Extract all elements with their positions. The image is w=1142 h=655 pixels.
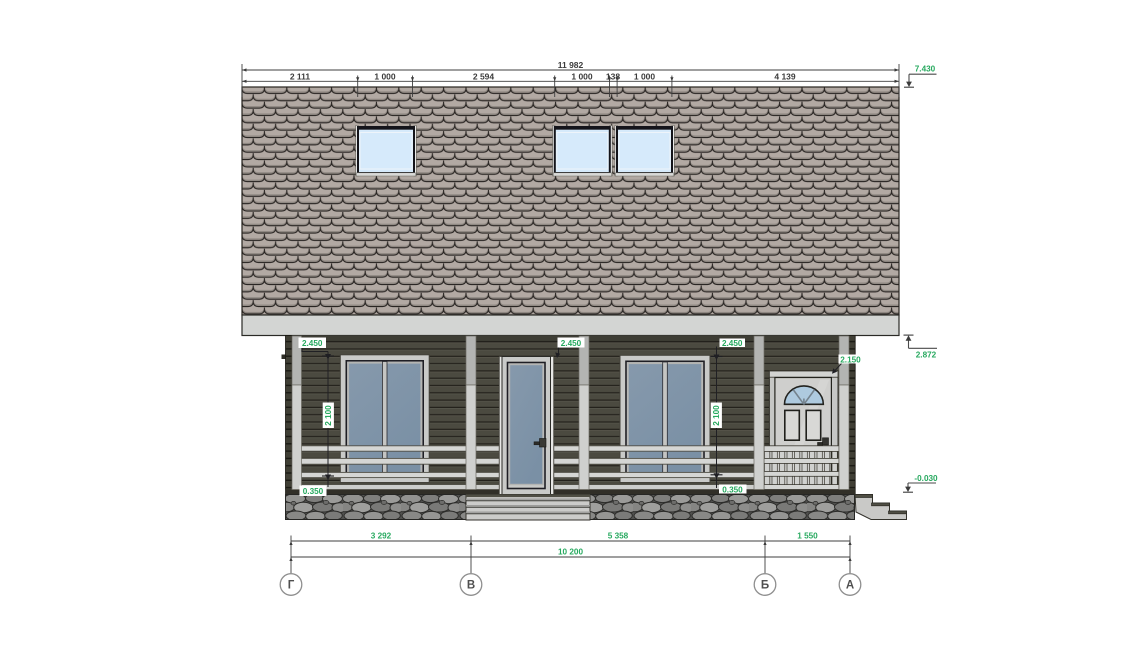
svg-text:10 200: 10 200 (558, 548, 583, 557)
svg-text:2 594: 2 594 (473, 71, 495, 81)
svg-text:138: 138 (606, 71, 620, 81)
svg-text:Б: Б (761, 580, 769, 592)
svg-text:-0.030: -0.030 (914, 474, 938, 483)
svg-text:2 111: 2 111 (290, 71, 311, 81)
svg-text:7.430: 7.430 (915, 65, 936, 74)
svg-text:2.450: 2.450 (722, 339, 743, 348)
svg-text:2 100: 2 100 (712, 405, 721, 426)
svg-text:5 358: 5 358 (608, 532, 629, 541)
svg-text:0.350: 0.350 (303, 487, 324, 496)
svg-text:0.350: 0.350 (722, 485, 743, 494)
svg-text:3 292: 3 292 (371, 532, 392, 541)
svg-text:2 100: 2 100 (324, 405, 333, 426)
svg-text:4 139: 4 139 (774, 71, 796, 81)
svg-text:2.872: 2.872 (916, 351, 937, 360)
svg-text:Г: Г (288, 580, 295, 592)
svg-text:2.450: 2.450 (302, 339, 323, 348)
svg-text:1 000: 1 000 (634, 71, 656, 81)
svg-text:1 550: 1 550 (797, 532, 818, 541)
svg-text:11 982: 11 982 (558, 60, 584, 70)
svg-text:1 000: 1 000 (571, 71, 593, 81)
svg-text:А: А (846, 580, 854, 592)
svg-text:1 000: 1 000 (374, 71, 396, 81)
svg-text:2.150: 2.150 (840, 355, 861, 364)
svg-text:2.450: 2.450 (561, 339, 582, 348)
svg-text:В: В (467, 580, 475, 592)
